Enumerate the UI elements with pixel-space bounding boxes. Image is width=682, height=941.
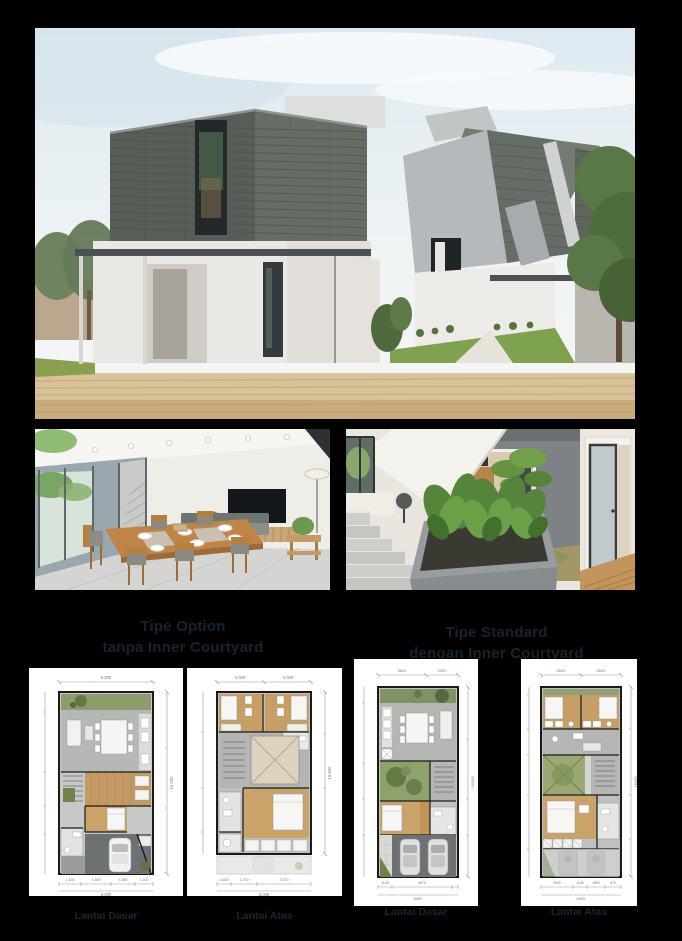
dimension-label: 3000 bbox=[557, 668, 567, 673]
floor-plan-ground-option-drawing: 6.000 16.000 1.150 1.850 1.800 1.200 6.0… bbox=[29, 668, 183, 896]
glass-door bbox=[590, 445, 616, 573]
car bbox=[428, 839, 448, 875]
ghost-carport bbox=[543, 849, 619, 877]
floor-plan-ground-standard-drawing: 3600 2000 16000 1125 4875 6000 bbox=[354, 659, 478, 906]
dimension-label: 6.000 bbox=[101, 675, 112, 680]
dimension-label: 3.700 bbox=[280, 878, 289, 882]
dining-room-photo bbox=[35, 429, 330, 590]
plan-caption: Lantai Atas bbox=[521, 906, 637, 918]
dimension-label: 4875 bbox=[418, 881, 426, 885]
dimension-label: 2000 bbox=[438, 668, 448, 673]
inner-courtyard-illustration bbox=[346, 429, 635, 590]
floor-plan-ground-option: 6.000 16.000 1.150 1.850 1.800 1.200 6.0… bbox=[29, 668, 183, 896]
dimension-label: 0.600 bbox=[220, 878, 229, 882]
dimension-label: 1.850 bbox=[92, 878, 101, 882]
dimension-label: 6000 bbox=[577, 896, 587, 901]
exterior-houses-photo bbox=[35, 28, 635, 419]
inner-courtyard-photo bbox=[346, 429, 635, 590]
dining-room-illustration bbox=[35, 429, 330, 590]
dimension-label: 15.800 bbox=[327, 766, 332, 779]
floor-plan-upper-option: 3.000 3.000 15.800 0.600 1.700 3.700 6.0… bbox=[187, 668, 342, 896]
dimension-label: 6.000 bbox=[101, 892, 112, 896]
exterior-houses-illustration bbox=[35, 28, 635, 419]
car bbox=[109, 838, 131, 872]
floor-plan-upper-option-drawing: 3.000 3.000 15.800 0.600 1.700 3.700 6.0… bbox=[187, 668, 342, 896]
dimension-label: 1.150 bbox=[66, 878, 75, 882]
dimension-label: 15000 bbox=[633, 776, 637, 788]
dimension-label: 2625 bbox=[553, 881, 561, 885]
dimension-label: 1.800 bbox=[119, 878, 128, 882]
dimension-label: 1125 bbox=[381, 881, 389, 885]
dimension-label: 1.200 bbox=[140, 878, 149, 882]
dimension-label: 675 bbox=[610, 881, 616, 885]
floor-plan-upper-standard-drawing: 3000 3000 15000 2625 1150 1550 675 6000 bbox=[521, 659, 637, 906]
dimension-label: 1550 bbox=[592, 881, 600, 885]
car bbox=[400, 839, 420, 875]
dimension-label: 3.000 bbox=[283, 675, 294, 680]
dimension-label: 6.000 bbox=[259, 892, 270, 896]
dimension-label: 3.000 bbox=[235, 675, 246, 680]
ghost-carport bbox=[217, 856, 311, 874]
dimension-label: 3600 bbox=[398, 668, 408, 673]
dimension-label: 3000 bbox=[597, 668, 607, 673]
left-house-canopy bbox=[75, 249, 371, 256]
standard-title-line1: Tipe Standard bbox=[354, 622, 639, 643]
option-title-line2: tanpa Inner Courtyard bbox=[29, 637, 337, 658]
dimension-label: 6000 bbox=[414, 896, 424, 901]
plan-caption: Lantai Dasar bbox=[354, 906, 478, 918]
option-title-line1: Tipe Option bbox=[29, 616, 337, 637]
plan-caption: Lantai Dasar bbox=[29, 910, 183, 922]
brochure-page: { "page": { "background": "#000000", "ca… bbox=[0, 0, 682, 941]
floor-plan-ground-standard: 3600 2000 16000 1125 4875 6000 bbox=[354, 659, 478, 906]
dimension-label: 16000 bbox=[470, 776, 475, 788]
plan-caption: Lantai Atas bbox=[187, 910, 342, 922]
dimension-label: 1150 bbox=[576, 881, 583, 885]
dimension-label: 16.000 bbox=[169, 776, 174, 789]
dimension-label: 1.700 bbox=[240, 878, 249, 882]
floor-plan-upper-standard: 3000 3000 15000 2625 1150 1550 675 6000 bbox=[521, 659, 637, 906]
standard-type-title: Tipe Standard dengan Inner Courtyard bbox=[354, 622, 639, 664]
option-type-title: Tipe Option tanpa Inner Courtyard bbox=[29, 616, 337, 658]
